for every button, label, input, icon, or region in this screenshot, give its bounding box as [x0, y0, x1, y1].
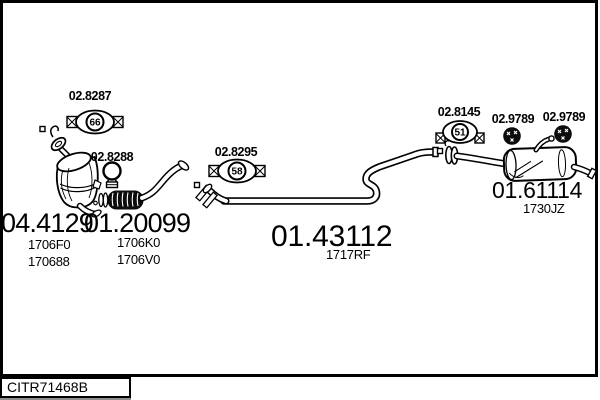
catalog-code: CITR71468B: [7, 379, 88, 395]
catalog-code-box: CITR71468B: [0, 377, 131, 398]
part-label-gasket-center: 02.8295: [208, 146, 264, 159]
part-label-gasket-front: 02.8287: [62, 90, 118, 103]
gasket-badge: 51: [454, 128, 466, 139]
part-label-mount-front: 02.9789: [485, 113, 541, 126]
part-number-rear-silencer: 01.61114: [492, 179, 582, 202]
oe-code: 1706F0: [28, 238, 70, 251]
part-label-clamp: 02.8288: [84, 151, 140, 164]
part-number-front-pipe: 01.20099: [84, 210, 190, 237]
oe-code: 1706V0: [117, 253, 160, 266]
rubber-mount-icon: [503, 127, 521, 145]
mounting-point-marker: [40, 127, 45, 132]
flange-gasket-icon: 66: [67, 111, 123, 134]
oe-code: 170688: [28, 255, 70, 268]
rubber-mount-icon: [554, 125, 572, 143]
mounting-point-marker: [195, 183, 200, 188]
oe-code: 1706K0: [117, 236, 160, 249]
flange-joint-drawing: [196, 183, 226, 208]
gasket-badge: 66: [89, 118, 101, 129]
mounting-point-marker: [438, 149, 443, 154]
flange-gasket-icon: 51: [436, 121, 484, 143]
flange-gasket-icon: 58: [209, 160, 265, 183]
oe-code: 1730JZ: [523, 202, 565, 215]
pipe-clamp-icon: [104, 163, 121, 188]
gasket-badge: 58: [231, 167, 243, 178]
oe-code: 1717RF: [326, 248, 370, 261]
exhaust-diagram-page: 66 58 51: [0, 0, 600, 400]
part-number-catalyst: 04.4129: [1, 210, 93, 237]
part-label-mount-rear: 02.9789: [536, 111, 592, 124]
part-label-gasket-rear: 02.8145: [431, 106, 487, 119]
